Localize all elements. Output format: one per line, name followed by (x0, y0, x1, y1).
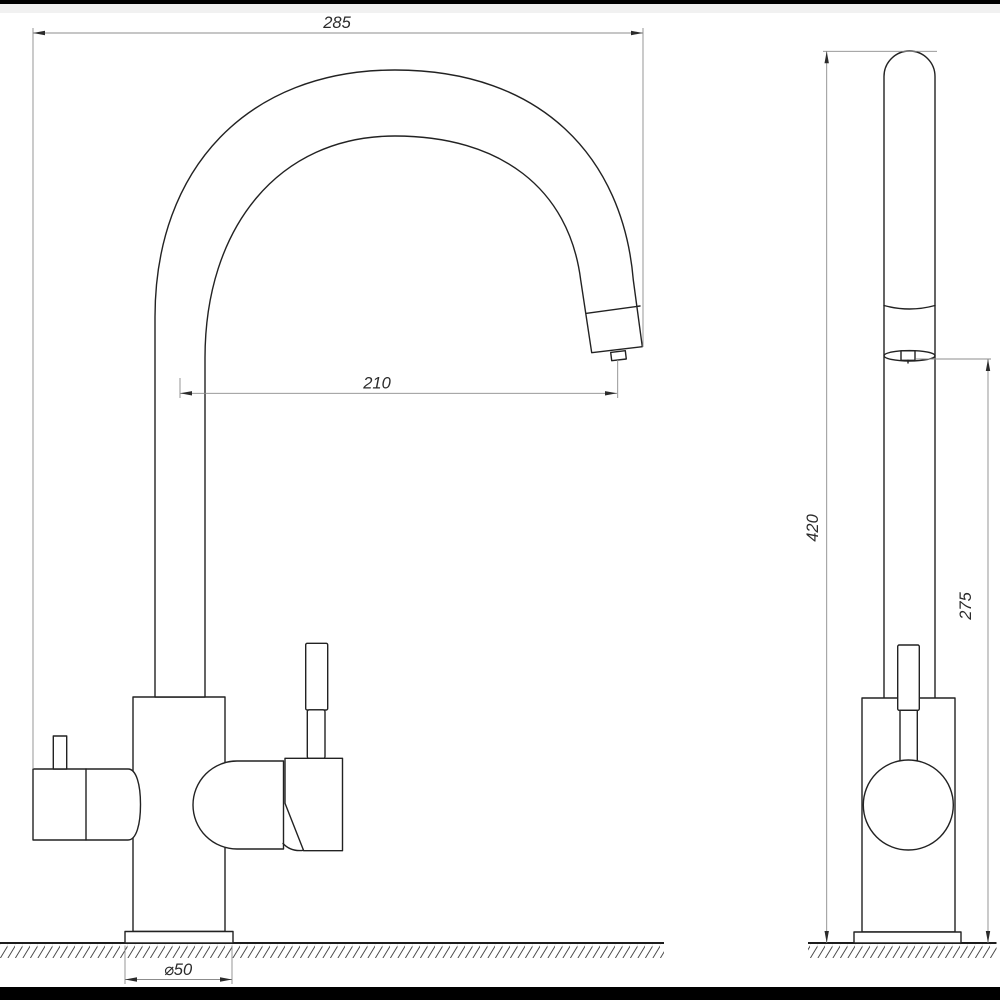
ground-hatch-side (808, 944, 997, 958)
handle-ball-side (863, 760, 953, 850)
handle-rod-side (900, 710, 917, 762)
side-view (808, 51, 997, 958)
nozzle-front (611, 351, 627, 361)
base-flange-side (854, 932, 961, 943)
dim-label-base-diameter: ⌀50 (164, 961, 193, 979)
base-flange-front (125, 932, 233, 944)
faucet-technical-drawing: 285 210 420 275 (0, 0, 1000, 1000)
dim-label-total-height: 420 (804, 513, 822, 541)
mixer-joint-bottom-arc (283, 844, 304, 851)
filter-handle-body (33, 769, 141, 840)
ground-hatch-front (0, 944, 664, 958)
dim-label-spout-reach: 210 (362, 375, 391, 393)
dim-label-outlet-height: 275 (957, 591, 975, 620)
mixer-handle-housing (285, 758, 343, 850)
front-view (0, 70, 664, 958)
spout-outline (155, 70, 642, 697)
mixer-handle-joint (193, 761, 284, 849)
drawing-canvas: 285 210 420 275 (0, 0, 1000, 1000)
column-side (884, 51, 935, 698)
mixer-lever-rod (307, 710, 325, 759)
dim-label-overall-width: 285 (322, 14, 351, 32)
mixer-lever-grip (306, 643, 328, 710)
handle-grip-side (898, 645, 920, 710)
dim-spout-reach: 210 (180, 360, 618, 398)
filter-handle-lever (53, 736, 66, 769)
nozzle-side (901, 351, 915, 361)
